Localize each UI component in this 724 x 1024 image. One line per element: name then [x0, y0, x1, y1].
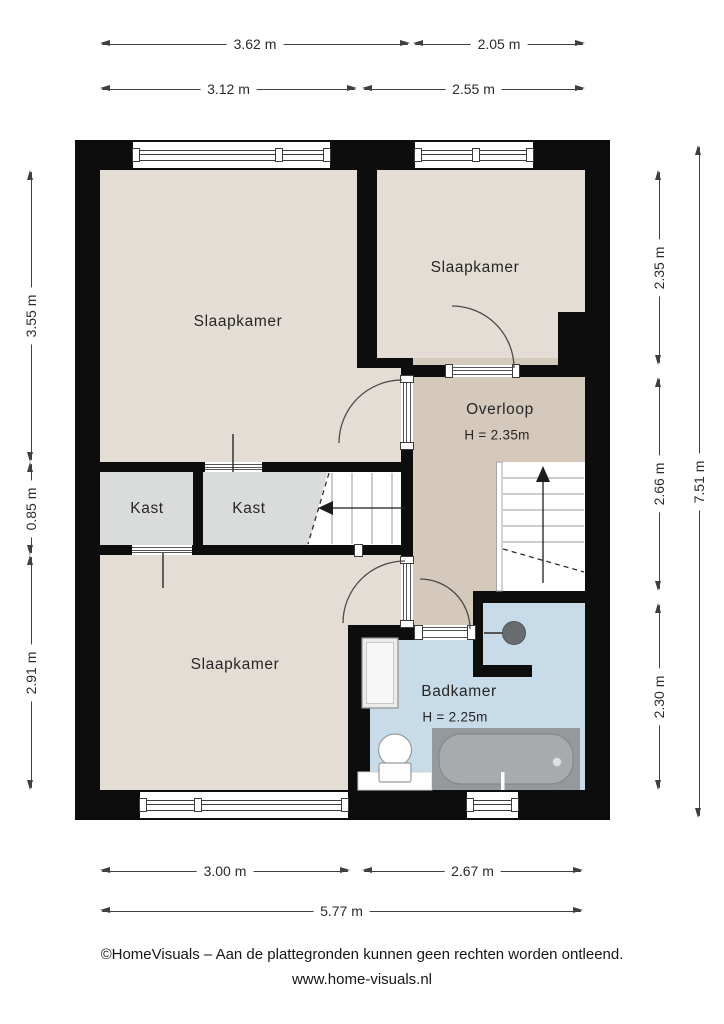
dim-bottom-inner-2: 2.67 m: [362, 864, 583, 878]
dim-label: 3.62 m: [227, 36, 284, 52]
arrow-down-icon: [27, 545, 33, 555]
dim-label: 3.00 m: [197, 863, 254, 879]
room-label-slaapkamer-tr: Slaapkamer: [431, 259, 520, 277]
arrow-down-icon: [27, 780, 33, 790]
stairs-arrow-up-icon: [536, 466, 550, 482]
dim-bottom-total: 5.77 m: [100, 904, 583, 918]
arrow-right-icon: [575, 85, 585, 91]
radiator-panel: [367, 643, 394, 704]
arrow-right-icon: [400, 40, 410, 46]
dim-top-inner-1: 3.12 m: [100, 82, 357, 96]
bathtub-faucet: [501, 772, 505, 790]
door-arc: [343, 561, 405, 623]
dim-label: 2.67 m: [444, 863, 501, 879]
room-height-badkamer: H = 2.25m: [422, 710, 487, 725]
footer-disclaimer: ©HomeVisuals – Aan de plattegronden kunn…: [0, 946, 724, 963]
dim-right-3: 2.30 m: [652, 603, 666, 790]
room-height-overloop: H = 2.35m: [464, 428, 529, 443]
arrow-down-icon: [655, 581, 661, 591]
dim-left-2: 0.85 m: [24, 462, 38, 555]
arrow-down-icon: [27, 452, 33, 462]
shower-head-icon: [503, 622, 526, 645]
arrow-down-icon: [655, 780, 661, 790]
toilet-tank: [379, 763, 411, 782]
arrow-right-icon: [340, 867, 350, 873]
bathtub-basin: [439, 734, 573, 784]
dim-label: 2.66 m: [651, 456, 667, 513]
dim-top-outer-1: 3.62 m: [100, 37, 410, 51]
room-label-overloop: Overloop: [466, 401, 534, 419]
toilet-bowl: [379, 734, 412, 766]
arrow-right-icon: [575, 40, 585, 46]
room-label-kast-1: Kast: [130, 500, 163, 518]
footer-website: www.home-visuals.nl: [0, 971, 724, 988]
door-arc: [339, 380, 402, 443]
arrow-right-icon: [573, 867, 583, 873]
dim-label: 2.91 m: [23, 644, 39, 701]
dim-left-3: 2.91 m: [24, 555, 38, 790]
dim-label: 3.55 m: [23, 288, 39, 345]
dim-label: 3.12 m: [200, 81, 257, 97]
dim-bottom-inner-1: 3.00 m: [100, 864, 350, 878]
dim-right-total: 7.51 m: [692, 145, 706, 818]
dim-left-1: 3.55 m: [24, 170, 38, 462]
door-arc: [420, 579, 470, 629]
room-label-kast-2: Kast: [232, 500, 265, 518]
arrow-right-icon: [347, 85, 357, 91]
floor-plan-page: 3.62 m 2.05 m 3.12 m 2.55 m 3.55 m 0.85 …: [0, 0, 724, 1024]
dim-top-outer-2: 2.05 m: [413, 37, 585, 51]
room-label-badkamer: Badkamer: [421, 683, 496, 701]
dim-label: 2.55 m: [445, 81, 502, 97]
dim-label: 2.30 m: [651, 668, 667, 725]
dim-right-1: 2.35 m: [652, 170, 666, 365]
bathtub-drain: [553, 758, 562, 767]
dim-right-2: 2.66 m: [652, 377, 666, 591]
door-arc: [452, 306, 514, 368]
dim-label: 0.85 m: [23, 480, 39, 537]
stairs-railing: [497, 462, 503, 591]
dim-top-inner-2: 2.55 m: [362, 82, 585, 96]
dim-label: 2.35 m: [651, 239, 667, 296]
arrow-right-icon: [573, 907, 583, 913]
plan-detail-layer: [75, 140, 610, 820]
room-label-slaapkamer-tl: Slaapkamer: [194, 313, 283, 331]
dim-label: 5.77 m: [313, 903, 370, 919]
dim-label: 2.05 m: [471, 36, 528, 52]
arrow-down-icon: [655, 355, 661, 365]
dim-label: 7.51 m: [691, 453, 707, 510]
arrow-down-icon: [695, 808, 701, 818]
room-label-slaapkamer-b: Slaapkamer: [191, 656, 280, 674]
